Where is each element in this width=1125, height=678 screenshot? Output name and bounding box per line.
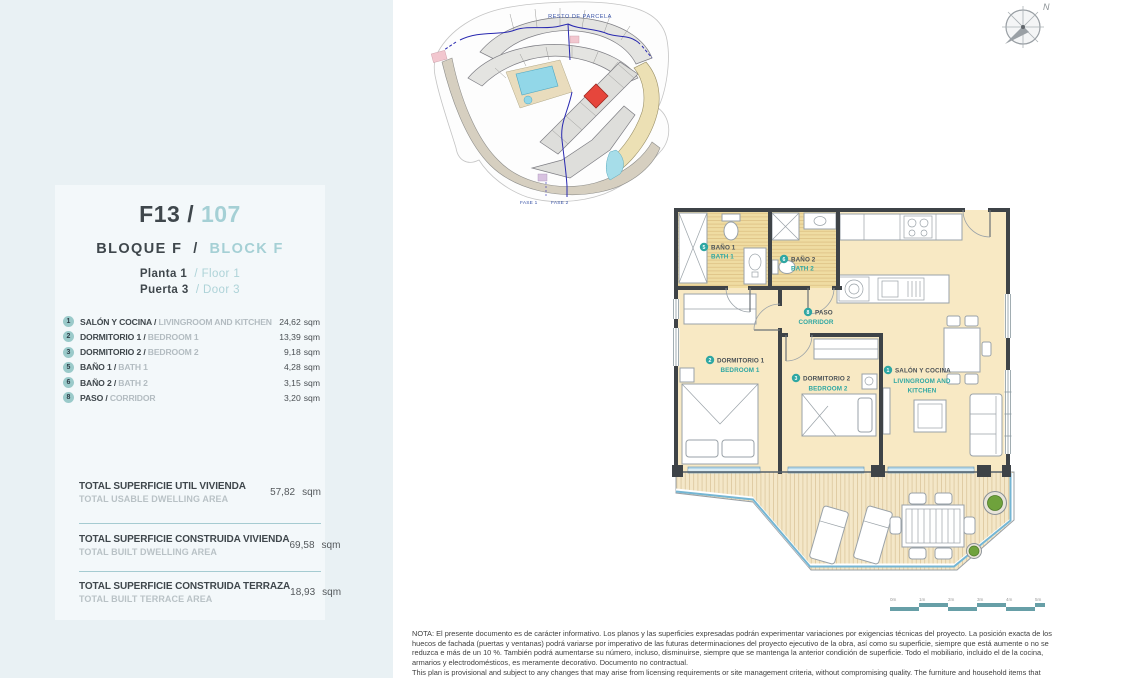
room-number-badge: 2 bbox=[63, 331, 74, 342]
room-area-unit: sqm bbox=[304, 317, 320, 327]
total-usable-area: TOTAL SUPERFICIE UTIL VIVIENDA TOTAL USA… bbox=[79, 481, 321, 504]
block-line: BLOQUE F / BLOCK F bbox=[55, 241, 325, 257]
scale-tick-label: 5m bbox=[1035, 597, 1042, 602]
door-line: Puerta 3 / Door 3 bbox=[55, 284, 325, 296]
room-area-unit: sqm bbox=[304, 332, 320, 342]
washbasin bbox=[744, 248, 766, 284]
divider bbox=[79, 571, 321, 572]
total-label-en: TOTAL USABLE DWELLING AREA bbox=[79, 494, 270, 504]
room-name-en: BEDROOM 1 bbox=[148, 332, 199, 342]
coffee-table bbox=[914, 400, 946, 432]
note-line: NOTA: El presente documento es de caráct… bbox=[412, 629, 1125, 639]
svg-text:BAÑO 2: BAÑO 2 bbox=[791, 255, 816, 264]
scale-tick-label: 1m bbox=[919, 597, 926, 602]
scale-tick-label: 2m bbox=[948, 597, 955, 602]
room-name-en: LIVINGROOM AND KITCHEN bbox=[158, 317, 271, 327]
total-built-terrace-area: TOTAL SUPERFICIE CONSTRUIDA TERRAZA TOTA… bbox=[79, 581, 321, 604]
fase2-label: FASE 2 bbox=[551, 200, 569, 206]
unit-number: 107 bbox=[201, 201, 241, 227]
single-bed bbox=[802, 394, 876, 436]
room-row-bedroom1: 2 DORMITORIO 1 / BEDROOM 1 13,39sqm bbox=[63, 331, 320, 342]
scale-tick-label: 0m bbox=[890, 597, 897, 602]
note-line: armarios y electrodomésticos, es meramen… bbox=[412, 658, 1125, 668]
north-label: N bbox=[1043, 2, 1050, 12]
room-number-badge: 5 bbox=[63, 362, 74, 373]
room-name-en: CORRIDOR bbox=[110, 393, 156, 403]
pink-block bbox=[570, 36, 579, 43]
site-plan: RESTO DE PARCELA FASE 1 FASE 2 bbox=[420, 0, 700, 210]
room-name-en: BEDROOM 2 bbox=[148, 347, 199, 357]
room-name-es: BAÑO 2 bbox=[80, 378, 112, 388]
nightstand bbox=[862, 374, 877, 389]
kitchen-island bbox=[837, 275, 949, 303]
room-name-es: SALÓN Y COCINA bbox=[80, 317, 152, 327]
room-area-unit: sqm bbox=[304, 362, 320, 372]
room-area-value: 13,39 bbox=[279, 332, 301, 342]
room-name-es: DORMITORIO 2 bbox=[80, 347, 141, 357]
nightstand bbox=[680, 368, 694, 382]
svg-text:DORMITORIO 2: DORMITORIO 2 bbox=[803, 376, 851, 383]
svg-text:5: 5 bbox=[703, 245, 706, 251]
room-row-bath1: 5 BAÑO 1 / BATH 1 4,28sqm bbox=[63, 362, 320, 373]
svg-text:BEDROOM 2: BEDROOM 2 bbox=[808, 386, 847, 393]
room-number-badge: 3 bbox=[63, 347, 74, 358]
svg-text:BEDROOM 1: BEDROOM 1 bbox=[720, 367, 759, 374]
kitchen-counter bbox=[840, 214, 962, 240]
room-name-es: BAÑO 1 bbox=[80, 362, 112, 372]
svg-text:BAÑO 1: BAÑO 1 bbox=[711, 243, 736, 252]
total-unit: sqm bbox=[302, 487, 321, 498]
floor-en: Floor 1 bbox=[202, 268, 241, 280]
block-en: BLOCK F bbox=[210, 241, 284, 257]
apartment-floor-plan: 5 BAÑO 1 BATH 1 6 BAÑO 2 BATH 2 8 PASO C… bbox=[668, 202, 1020, 602]
divider bbox=[79, 523, 321, 524]
sofa bbox=[970, 394, 1002, 456]
block-es: BLOQUE F bbox=[96, 241, 182, 257]
total-label-en: TOTAL BUILT DWELLING AREA bbox=[79, 547, 290, 557]
room-name-en: BATH 2 bbox=[118, 378, 148, 388]
floor-es: Planta 1 bbox=[140, 268, 187, 280]
room-area-unit: sqm bbox=[304, 378, 320, 388]
door-es: Puerta 3 bbox=[140, 284, 189, 296]
room-row-bath2: 6 BAÑO 2 / BATH 2 3,15sqm bbox=[63, 377, 320, 388]
svg-text:6: 6 bbox=[783, 257, 786, 263]
room-number-badge: 1 bbox=[63, 316, 74, 327]
total-label-es: TOTAL SUPERFICIE UTIL VIVIENDA bbox=[79, 481, 270, 492]
legal-note: NOTA: El presente documento es de caráct… bbox=[412, 629, 1125, 678]
title-separator: / bbox=[187, 201, 194, 227]
svg-text:CORRIDOR: CORRIDOR bbox=[798, 319, 833, 326]
door-en: Door 3 bbox=[203, 284, 240, 296]
svg-text:1: 1 bbox=[887, 368, 890, 374]
scale-tick-label: 4m bbox=[1006, 597, 1013, 602]
svg-text:BATH 1: BATH 1 bbox=[711, 254, 734, 261]
double-bed bbox=[682, 384, 758, 464]
plant-pot bbox=[967, 544, 982, 559]
unit-info-panel: F13 / 107 BLOQUE F / BLOCK F Planta 1 / … bbox=[55, 185, 325, 620]
floor-plan-page: F13 / 107 BLOQUE F / BLOCK F Planta 1 / … bbox=[0, 0, 1125, 678]
svg-text:DORMITORIO 1: DORMITORIO 1 bbox=[717, 358, 765, 365]
toilet bbox=[722, 214, 740, 221]
room-name-es: PASO bbox=[80, 393, 103, 403]
scale-bar-steps bbox=[890, 603, 1045, 611]
terrace bbox=[676, 472, 1014, 570]
svg-text:8: 8 bbox=[807, 310, 810, 316]
unit-title: F13 / 107 bbox=[55, 201, 325, 228]
door-separator: / bbox=[196, 284, 200, 296]
floor-separator: / bbox=[194, 268, 198, 280]
room-area-unit: sqm bbox=[304, 393, 320, 403]
plant-pot bbox=[984, 492, 1007, 515]
room-area-unit: sqm bbox=[304, 347, 320, 357]
room-area-value: 24,62 bbox=[279, 317, 301, 327]
tv-unit bbox=[883, 388, 890, 434]
small-pool bbox=[524, 96, 532, 104]
total-unit: sqm bbox=[322, 540, 341, 551]
floor-line: Planta 1 / Floor 1 bbox=[55, 268, 325, 280]
svg-text:SALÓN Y COCINA: SALÓN Y COCINA bbox=[895, 366, 951, 375]
total-unit: sqm bbox=[322, 587, 341, 598]
total-label-es: TOTAL SUPERFICIE CONSTRUIDA TERRAZA bbox=[79, 581, 290, 592]
total-label-es: TOTAL SUPERFICIE CONSTRUIDA VIVIENDA bbox=[79, 534, 290, 545]
unit-code: F13 bbox=[139, 201, 180, 227]
room-area-value: 9,18 bbox=[284, 347, 301, 357]
fase1-label: FASE 1 bbox=[520, 200, 538, 206]
room-number-badge: 8 bbox=[63, 392, 74, 403]
room-area-value: 4,28 bbox=[284, 362, 301, 372]
purple-block bbox=[538, 174, 547, 181]
resto-de-parcela-label: RESTO DE PARCELA bbox=[548, 14, 612, 20]
scale-bar: 0m 1m 2m 3m 4m 5m bbox=[882, 594, 1072, 620]
room-number-badge: 6 bbox=[63, 377, 74, 388]
total-built-dwelling-area: TOTAL SUPERFICIE CONSTRUIDA VIVIENDA TOT… bbox=[79, 534, 321, 557]
total-label-en: TOTAL BUILT TERRACE AREA bbox=[79, 594, 290, 604]
note-line: reduzca e más de un 10 %. También podrá … bbox=[412, 648, 1125, 658]
svg-text:3: 3 bbox=[795, 376, 798, 382]
room-name-en: BATH 1 bbox=[118, 362, 148, 372]
room-row-bedroom2: 3 DORMITORIO 2 / BEDROOM 2 9,18sqm bbox=[63, 347, 320, 358]
svg-text:2: 2 bbox=[709, 358, 712, 364]
room-area-value: 3,20 bbox=[284, 393, 301, 403]
compass-icon: N bbox=[1002, 2, 1050, 48]
svg-text:PASO: PASO bbox=[815, 310, 833, 317]
svg-text:BATH 2: BATH 2 bbox=[791, 266, 814, 273]
room-area-value: 3,15 bbox=[284, 378, 301, 388]
room-row-corridor: 8 PASO / CORRIDOR 3,20sqm bbox=[63, 392, 320, 403]
svg-text:LIVINGROOM AND: LIVINGROOM AND bbox=[893, 378, 950, 385]
block-separator: / bbox=[193, 241, 198, 257]
compass-rose: N bbox=[993, 0, 1057, 60]
svg-text:KITCHEN: KITCHEN bbox=[908, 388, 937, 395]
total-value: 18,93 bbox=[290, 587, 315, 598]
total-value: 57,82 bbox=[270, 487, 295, 498]
toilet bbox=[772, 260, 778, 274]
scale-tick-label: 3m bbox=[977, 597, 984, 602]
room-row-living: 1 SALÓN Y COCINA / LIVINGROOM AND KITCHE… bbox=[63, 316, 320, 327]
room-name-es: DORMITORIO 1 bbox=[80, 332, 141, 342]
room-area-list: 1 SALÓN Y COCINA / LIVINGROOM AND KITCHE… bbox=[63, 316, 320, 408]
total-value: 69,58 bbox=[290, 540, 315, 551]
washbasin bbox=[804, 213, 836, 229]
note-line: This plan is provisional and subject to … bbox=[412, 668, 1125, 678]
note-line: huecos de fachada (puertas y ventanas) p… bbox=[412, 639, 1125, 649]
